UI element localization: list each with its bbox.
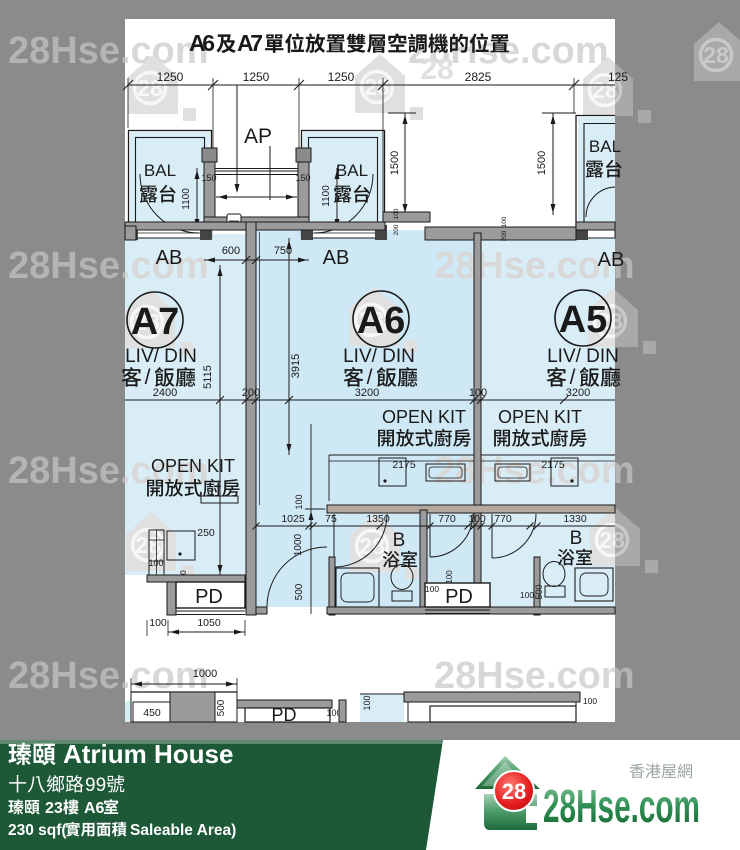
svg-text:1250: 1250 <box>328 70 355 84</box>
svg-text:AB: AB <box>323 247 350 269</box>
svg-text:PD: PD <box>195 586 223 608</box>
svg-text:100: 100 <box>149 617 167 629</box>
svg-text:770: 770 <box>494 513 512 525</box>
svg-text:100: 100 <box>425 584 439 594</box>
svg-text:3200: 3200 <box>355 387 379 399</box>
svg-text:23: 23 <box>45 800 63 817</box>
svg-text:2175: 2175 <box>392 459 416 471</box>
svg-text:28: 28 <box>502 779 526 804</box>
svg-text:A6: A6 <box>84 800 105 817</box>
svg-text:1100: 1100 <box>321 185 332 207</box>
svg-text:200: 200 <box>393 224 400 235</box>
svg-text:1500: 1500 <box>536 151 548 175</box>
svg-text:28: 28 <box>703 42 729 68</box>
svg-text:100: 100 <box>469 387 487 399</box>
svg-text:LIV/ DIN: LIV/ DIN <box>125 346 197 367</box>
svg-text:BAL: BAL <box>589 137 621 156</box>
svg-text:100: 100 <box>294 494 304 509</box>
svg-text:100: 100 <box>393 208 400 219</box>
svg-text:28: 28 <box>359 533 385 559</box>
svg-text:LIV/ DIN: LIV/ DIN <box>343 346 415 367</box>
svg-text:500: 500 <box>294 583 305 600</box>
svg-text:B: B <box>393 530 406 551</box>
svg-text:600: 600 <box>222 245 240 257</box>
svg-text:100: 100 <box>445 570 454 584</box>
svg-text:100: 100 <box>468 513 486 525</box>
svg-text:125: 125 <box>608 70 628 84</box>
svg-text:1100: 1100 <box>181 188 192 210</box>
svg-text:PD: PD <box>445 586 473 608</box>
svg-text:28Hse.com: 28Hse.com <box>434 655 635 697</box>
svg-text:200: 200 <box>242 387 260 399</box>
svg-text:OPEN KIT: OPEN KIT <box>151 456 235 476</box>
svg-text:2400: 2400 <box>153 387 177 399</box>
svg-text:1350: 1350 <box>366 513 390 525</box>
svg-text:Saleable Area): Saleable Area) <box>130 822 236 839</box>
svg-text:1250: 1250 <box>243 70 270 84</box>
svg-text:3915: 3915 <box>290 354 302 378</box>
svg-text:500: 500 <box>534 584 544 599</box>
svg-text:OPEN KIT: OPEN KIT <box>382 407 466 427</box>
svg-text:1000: 1000 <box>293 533 304 556</box>
svg-text:28Hse.com: 28Hse.com <box>434 450 635 492</box>
svg-text:500: 500 <box>216 699 227 716</box>
svg-text:99: 99 <box>85 775 106 796</box>
svg-text:230 sqf(: 230 sqf( <box>8 822 67 839</box>
svg-text:450: 450 <box>143 707 161 719</box>
svg-text:A5: A5 <box>559 299 608 341</box>
svg-text:3200: 3200 <box>566 387 590 399</box>
svg-text:AP: AP <box>244 125 272 148</box>
svg-text:/: / <box>367 366 373 389</box>
svg-text:1330: 1330 <box>563 513 587 525</box>
svg-text:/: / <box>145 366 151 389</box>
svg-text:150: 150 <box>201 173 216 183</box>
svg-text:/: / <box>570 366 576 389</box>
svg-text:AB: AB <box>598 249 625 271</box>
svg-text:1050: 1050 <box>197 617 221 629</box>
svg-text:BAL: BAL <box>336 161 368 180</box>
svg-text:Atrium House: Atrium House <box>63 739 233 769</box>
svg-text:LIV/ DIN: LIV/ DIN <box>547 346 619 367</box>
svg-text:A6: A6 <box>189 30 215 56</box>
svg-text:A7: A7 <box>237 30 263 56</box>
svg-text:100: 100 <box>362 695 372 710</box>
svg-text:770: 770 <box>438 513 456 525</box>
svg-text:2825: 2825 <box>465 70 492 84</box>
svg-text:150: 150 <box>295 173 310 183</box>
svg-text:28: 28 <box>135 532 161 558</box>
svg-text:B: B <box>570 528 583 549</box>
svg-text:200: 200 <box>501 230 508 241</box>
svg-text:1025: 1025 <box>281 513 305 525</box>
svg-text:5115: 5115 <box>202 365 214 389</box>
svg-text:BAL: BAL <box>144 161 176 180</box>
svg-text:2175: 2175 <box>541 459 565 471</box>
svg-text:A6: A6 <box>357 300 406 342</box>
svg-text:100: 100 <box>520 590 534 600</box>
svg-text:OPEN KIT: OPEN KIT <box>498 407 582 427</box>
svg-text:28: 28 <box>364 74 390 100</box>
svg-text:PD: PD <box>271 705 296 725</box>
svg-text:28: 28 <box>420 53 453 86</box>
svg-text:28Hse.com: 28Hse.com <box>543 780 700 832</box>
svg-text:100: 100 <box>583 696 597 706</box>
svg-text:100: 100 <box>501 216 508 227</box>
svg-text:250: 250 <box>197 527 215 539</box>
svg-text:1250: 1250 <box>157 70 184 84</box>
svg-text:AB: AB <box>156 247 183 269</box>
svg-text:1500: 1500 <box>389 151 401 175</box>
svg-text:75: 75 <box>325 513 337 525</box>
svg-text:1000: 1000 <box>193 668 217 680</box>
svg-text:100: 100 <box>148 558 163 568</box>
svg-text:A7: A7 <box>131 301 180 343</box>
